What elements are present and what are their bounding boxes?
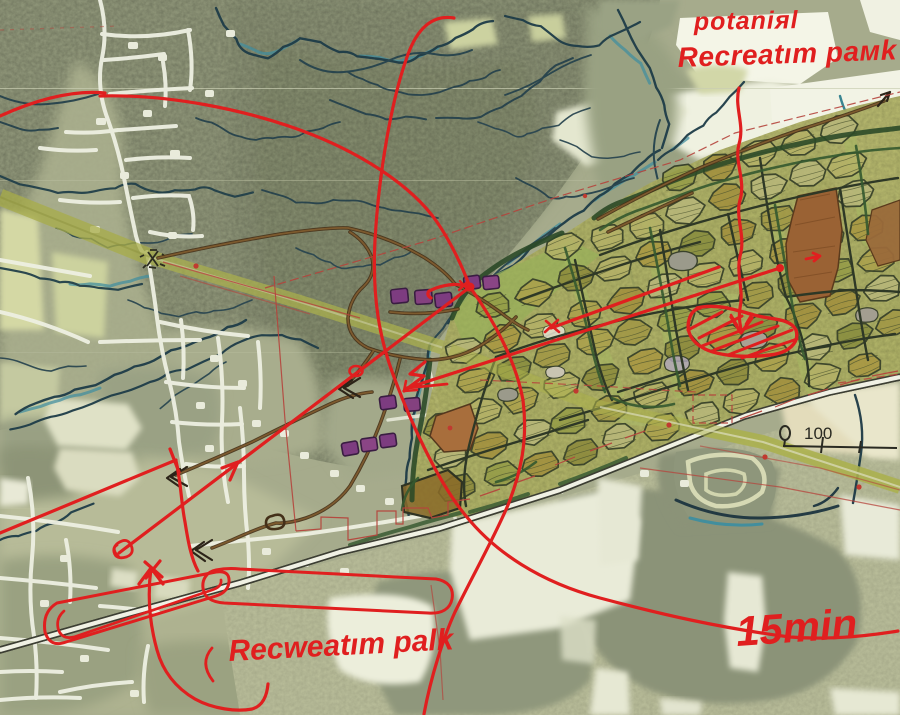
svg-text:100: 100: [804, 424, 832, 443]
svg-text:15min: 15min: [734, 600, 858, 655]
svg-text:potаniяl: potаniяl: [693, 6, 799, 36]
